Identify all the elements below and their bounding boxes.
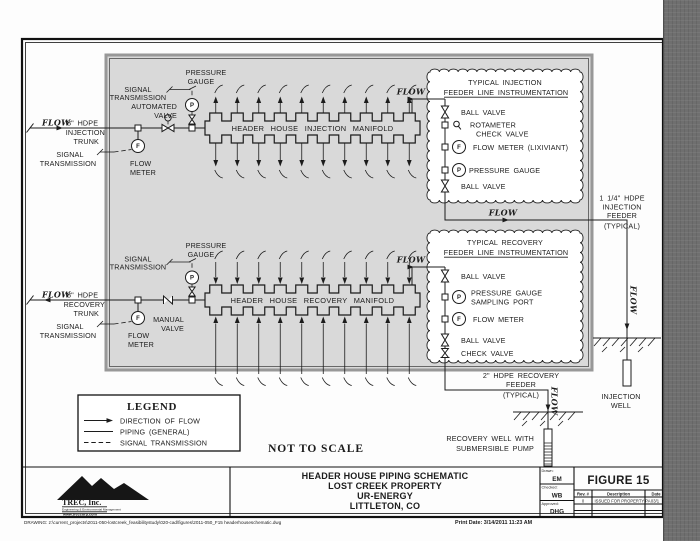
recovery-well-label: SUBMERSIBLE PUMP xyxy=(456,444,534,453)
instrumentation-title: TYPICAL INJECTION xyxy=(468,78,542,87)
project-title-line: HEADER HOUSE PIPING SCHEMATIC xyxy=(302,471,469,481)
legend-item-label: PIPING (GENERAL) xyxy=(120,428,190,437)
pressure-gauge-label: GAUGE xyxy=(188,250,215,259)
project-title-line: LOST CREEK PROPERTY xyxy=(328,481,442,491)
rev-cell: ISSUED FOR PROPERTY PA xyxy=(595,499,651,504)
instr-item-label: BALL VALVE xyxy=(461,272,506,281)
instr-item-label: SAMPLING PORT xyxy=(471,298,534,307)
flow-meter-label: METER xyxy=(128,340,154,349)
signal-transmission-label: TRANSMISSION xyxy=(40,331,97,340)
port-icon xyxy=(189,125,195,131)
flow-label: FLOW xyxy=(396,87,426,97)
pressure-gauge-icon xyxy=(453,164,466,177)
recovery-feeder-label: 2" HDPE RECOVERY xyxy=(483,371,559,380)
rev-header: Description xyxy=(607,492,630,497)
drawing-file-path: DRAWING: z:\current_projects\2011-050-lo… xyxy=(24,520,282,525)
port-icon xyxy=(442,122,448,128)
flow-label: FLOW xyxy=(629,285,639,315)
flow-arrow-icon xyxy=(625,324,630,331)
injection-feeder-label: INJECTION xyxy=(602,203,641,212)
signal-transmission-label: SIGNAL xyxy=(56,150,83,159)
injection-trunk-label: TRUNK xyxy=(73,137,99,146)
instr-item-label: PRESSURE GAUGE xyxy=(469,166,540,175)
project-title-line: UR-ENERGY xyxy=(357,491,413,501)
instrumentation-title: FEEDER LINE INSTRUMENTATION xyxy=(444,88,568,97)
injection-feeder-label: (TYPICAL) xyxy=(604,222,640,231)
pressure-gauge-icon xyxy=(186,99,199,112)
port-icon xyxy=(135,297,141,303)
injection-well-icon xyxy=(623,360,631,386)
drawn-label: Drawn: xyxy=(542,469,554,473)
instr-item-label: CHECK VALVE xyxy=(476,130,529,139)
port-icon xyxy=(442,167,448,173)
recovery-trunk-label: TRUNK xyxy=(73,309,99,318)
automated-valve-label: AUTOMATED xyxy=(131,102,177,111)
pressure-gauge-icon xyxy=(453,291,466,304)
trec-logo-mountain-icon xyxy=(57,476,149,500)
title-block: TREC, Inc. Engineering & Environmental M… xyxy=(22,467,663,517)
schematic-svg: P F HEADER HOUSE INJECTION MANIFOLD xyxy=(0,0,700,541)
flow-meter-icon xyxy=(453,141,466,154)
rev-cell: 0 xyxy=(582,499,585,504)
flow-meter-label: FLOW xyxy=(130,159,151,168)
injection-trunk-label: INJECTION xyxy=(66,128,105,137)
drawn-value: EM xyxy=(552,476,561,483)
checked-label: Checked: xyxy=(542,486,558,490)
approved-value: DHG xyxy=(550,509,564,516)
port-icon xyxy=(442,294,448,300)
flow-label: FLOW xyxy=(488,208,518,218)
instr-item-label: BALL VALVE xyxy=(461,336,506,345)
instr-item-label: FLOW METER xyxy=(473,315,524,324)
instr-item-label: ROTAMETER xyxy=(470,121,516,130)
flow-meter-label: FLOW xyxy=(128,331,149,340)
recovery-trunk-label: RECOVERY xyxy=(64,300,105,309)
rev-header: Date xyxy=(651,492,661,497)
automated-valve-label: VALVE xyxy=(154,111,177,120)
flow-label: FLOW xyxy=(550,386,560,416)
signal-transmission-label: TRANSMISSION xyxy=(110,263,167,272)
scanned-drawing-page: P F HEADER HOUSE INJECTION MANIFOLD xyxy=(0,0,700,541)
recovery-manifold-label: HEADER HOUSE RECOVERY MANIFOLD xyxy=(231,296,395,305)
checked-value: WB xyxy=(552,493,563,500)
injection-trunk-label: 8" HDPE xyxy=(67,119,98,128)
flow-meter-icon xyxy=(132,312,145,325)
print-date: Print Date: 3/14/2011 11:23 AM xyxy=(455,520,533,526)
instrumentation-title: FEEDER LINE INSTRUMENTATION xyxy=(444,248,568,257)
instrumentation-title: TYPICAL RECOVERY xyxy=(467,238,543,247)
port-icon xyxy=(189,297,195,303)
rev-cell: 03/1 xyxy=(651,499,660,504)
approved-label: Approved: xyxy=(542,502,559,506)
recovery-well-label: RECOVERY WELL WITH xyxy=(446,434,534,443)
signal-transmission-label: TRANSMISSION xyxy=(110,93,167,102)
flow-label: FLOW xyxy=(396,255,426,265)
port-icon xyxy=(442,316,448,322)
manual-valve-label: VALVE xyxy=(161,324,184,333)
signal-transmission-label: SIGNAL xyxy=(56,322,83,331)
project-title-line: LITTLETON, CO xyxy=(350,501,420,511)
pressure-gauge-label: PRESSURE xyxy=(186,68,227,77)
recovery-feeder-label: (TYPICAL) xyxy=(503,391,539,400)
injection-well-label: WELL xyxy=(611,401,631,410)
instr-item-label: BALL VALVE xyxy=(461,108,506,117)
company-tagline: Engineering & Environmental Management xyxy=(62,507,121,511)
instr-item-label: PRESSURE GAUGE xyxy=(471,289,542,298)
pressure-gauge-label: GAUGE xyxy=(188,77,215,86)
flow-meter-icon xyxy=(453,313,466,326)
injection-manifold-label: HEADER HOUSE INJECTION MANIFOLD xyxy=(232,124,394,133)
rev-header: Rev. # xyxy=(577,492,590,497)
pressure-gauge-icon xyxy=(186,271,199,284)
recovery-feeder-label: FEEDER xyxy=(506,380,536,389)
recovery-well-icon xyxy=(544,429,552,466)
legend-item-label: SIGNAL TRANSMISSION xyxy=(120,439,207,448)
instr-item-label: CHECK VALVE xyxy=(461,349,514,358)
legend: LEGEND DIRECTION OF FLOW PIPING (GENERAL… xyxy=(78,395,240,451)
legend-item-label: DIRECTION OF FLOW xyxy=(120,417,200,426)
pressure-gauge-label: PRESSURE xyxy=(186,241,227,250)
recovery-trunk-label: 8" HDPE xyxy=(67,291,98,300)
company-name: TREC, Inc. xyxy=(62,498,101,507)
injection-feeder-label: FEEDER xyxy=(607,211,637,220)
instr-item-label: FLOW METER (LIXIVIANT) xyxy=(473,143,568,152)
flow-meter-icon xyxy=(132,140,145,153)
figure-number: FIGURE 15 xyxy=(587,475,649,487)
flow-meter-label: METER xyxy=(130,168,156,177)
injection-well-label: INJECTION xyxy=(601,392,640,401)
port-icon xyxy=(135,125,141,131)
manual-valve-label: MANUAL xyxy=(153,315,184,324)
company-url: www.treccorp.com xyxy=(62,513,97,517)
instr-item-label: BALL VALVE xyxy=(461,182,506,191)
injection-feeder-label: 1 1/4" HDPE xyxy=(599,194,644,203)
port-icon xyxy=(442,144,448,150)
signal-transmission-label: TRANSMISSION xyxy=(40,159,97,168)
page-edge-band xyxy=(663,0,700,541)
not-to-scale-note: NOT TO SCALE xyxy=(268,443,364,455)
legend-title: LEGEND xyxy=(127,401,177,413)
